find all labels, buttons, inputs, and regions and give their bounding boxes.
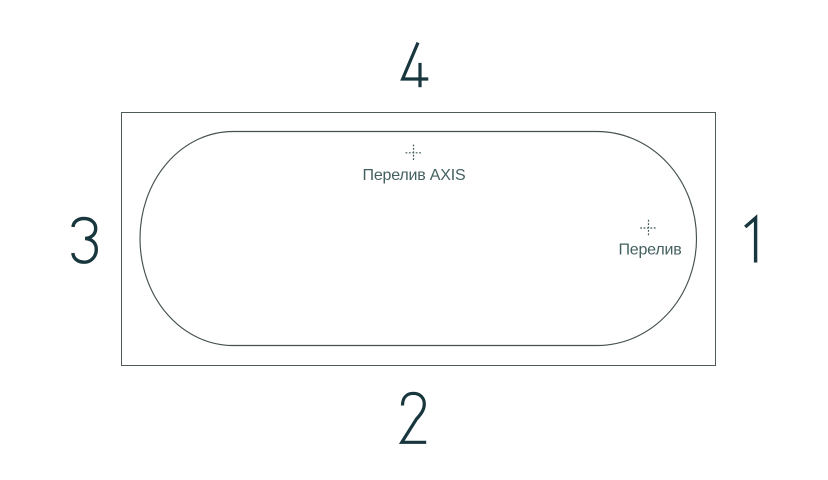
svg-text:Перелив AXIS: Перелив AXIS bbox=[363, 167, 466, 184]
svg-text:Перелив: Перелив bbox=[618, 242, 681, 259]
